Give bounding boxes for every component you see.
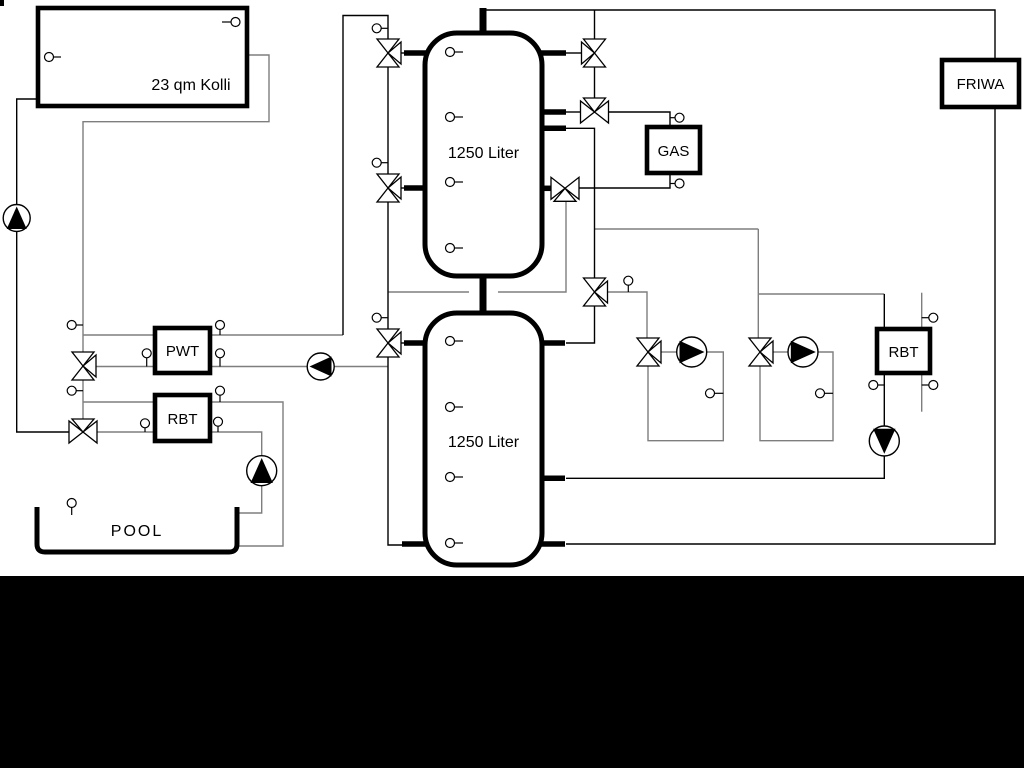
valve-tank2-upper-left	[377, 329, 401, 357]
valve-solar-pwt	[72, 352, 96, 380]
pump-circuit-1	[677, 337, 707, 367]
valve-gas-flow	[581, 98, 609, 123]
temp-sensor	[67, 386, 83, 395]
temp-sensor	[67, 321, 83, 330]
valve-header	[584, 278, 608, 306]
temp-sensor	[214, 417, 223, 432]
pwt-label: PWT	[166, 343, 199, 360]
bottom-black-band	[0, 576, 1024, 768]
collector-label: 23 qm Kolli	[151, 77, 230, 94]
gas-label: GAS	[658, 143, 690, 160]
temp-sensor	[816, 389, 834, 398]
valve-tank1-lower-left	[377, 174, 401, 202]
temp-sensor	[142, 349, 151, 367]
pool-label: POOL	[111, 523, 163, 540]
temp-sensor	[216, 386, 225, 402]
pump-pool	[247, 456, 277, 486]
temp-sensor	[922, 313, 938, 322]
temp-sensor	[372, 158, 388, 167]
temp-sensor	[67, 499, 76, 516]
temp-sensor	[216, 349, 225, 367]
valve-circuit-2	[749, 338, 773, 366]
tank2-label: 1250 Liter	[448, 434, 520, 451]
pump-solar	[3, 205, 30, 232]
temp-sensor	[141, 419, 150, 432]
temp-sensor	[670, 113, 684, 122]
temp-sensor	[670, 179, 684, 188]
valve-tank1-upper-right	[582, 39, 606, 67]
temp-sensor	[372, 313, 388, 322]
tank1-label: 1250 Liter	[448, 145, 520, 162]
temp-sensor	[922, 381, 938, 390]
pump-pwt	[307, 353, 334, 380]
valve-tank1-upper-left	[377, 39, 401, 67]
temp-sensor	[706, 389, 724, 398]
valve-pool	[69, 419, 97, 443]
temp-sensor	[869, 381, 885, 390]
hydraulic-schematic: 23 qm Kolli 1250 Liter 1250 Liter PWT RB…	[0, 0, 1024, 768]
friwa-label: FRIWA	[957, 76, 1005, 93]
temp-sensor	[216, 321, 225, 336]
pump-circuit-2	[788, 337, 818, 367]
temp-sensor	[372, 24, 388, 33]
rbt-right-label: RBT	[889, 344, 919, 361]
temp-sensor	[624, 276, 633, 292]
valve-gas-return	[551, 177, 579, 201]
rbt-left-label: RBT	[168, 411, 198, 428]
pump-rbt-right	[869, 426, 899, 456]
corner-artifact	[0, 0, 4, 6]
valve-circuit-1	[637, 338, 661, 366]
